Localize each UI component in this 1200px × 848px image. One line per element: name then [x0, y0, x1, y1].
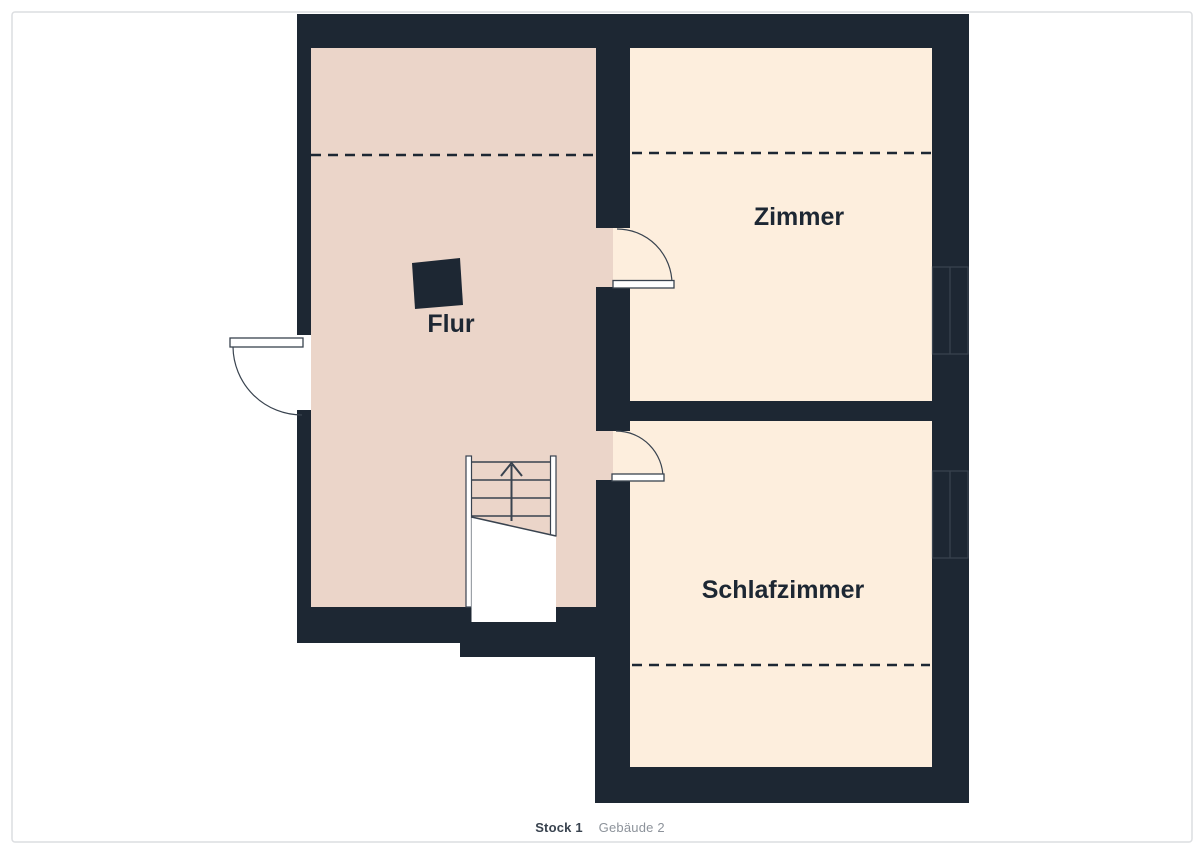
- stair-stringer-left: [466, 456, 472, 607]
- door-schlafzimmer-leaf: [612, 474, 664, 481]
- floorplan-canvas: Flur Zimmer Schlafzimmer: [0, 0, 1200, 848]
- floor-caption: Stock 1 Gebäude 2: [0, 820, 1200, 835]
- door-zimmer-leaf: [613, 281, 674, 289]
- door-zimmer-opening: [596, 228, 613, 287]
- floor-name: Stock 1: [535, 820, 583, 835]
- floorplan-page: Flur Zimmer Schlafzimmer Stock 1 Gebäude…: [0, 0, 1200, 848]
- room-label-zimmer: Zimmer: [754, 203, 845, 231]
- door-zimmer-opening: [613, 228, 630, 287]
- entry-door-leaf: [230, 338, 303, 347]
- room-label-flur: Flur: [427, 310, 474, 338]
- stair-stringer-right: [551, 456, 557, 536]
- building-name: Gebäude 2: [599, 820, 665, 835]
- door-schlafzimmer-opening: [596, 431, 613, 480]
- chimney: [412, 258, 463, 309]
- door-schlafzimmer-opening: [613, 431, 630, 480]
- room-label-schlafzimmer: Schlafzimmer: [702, 576, 865, 604]
